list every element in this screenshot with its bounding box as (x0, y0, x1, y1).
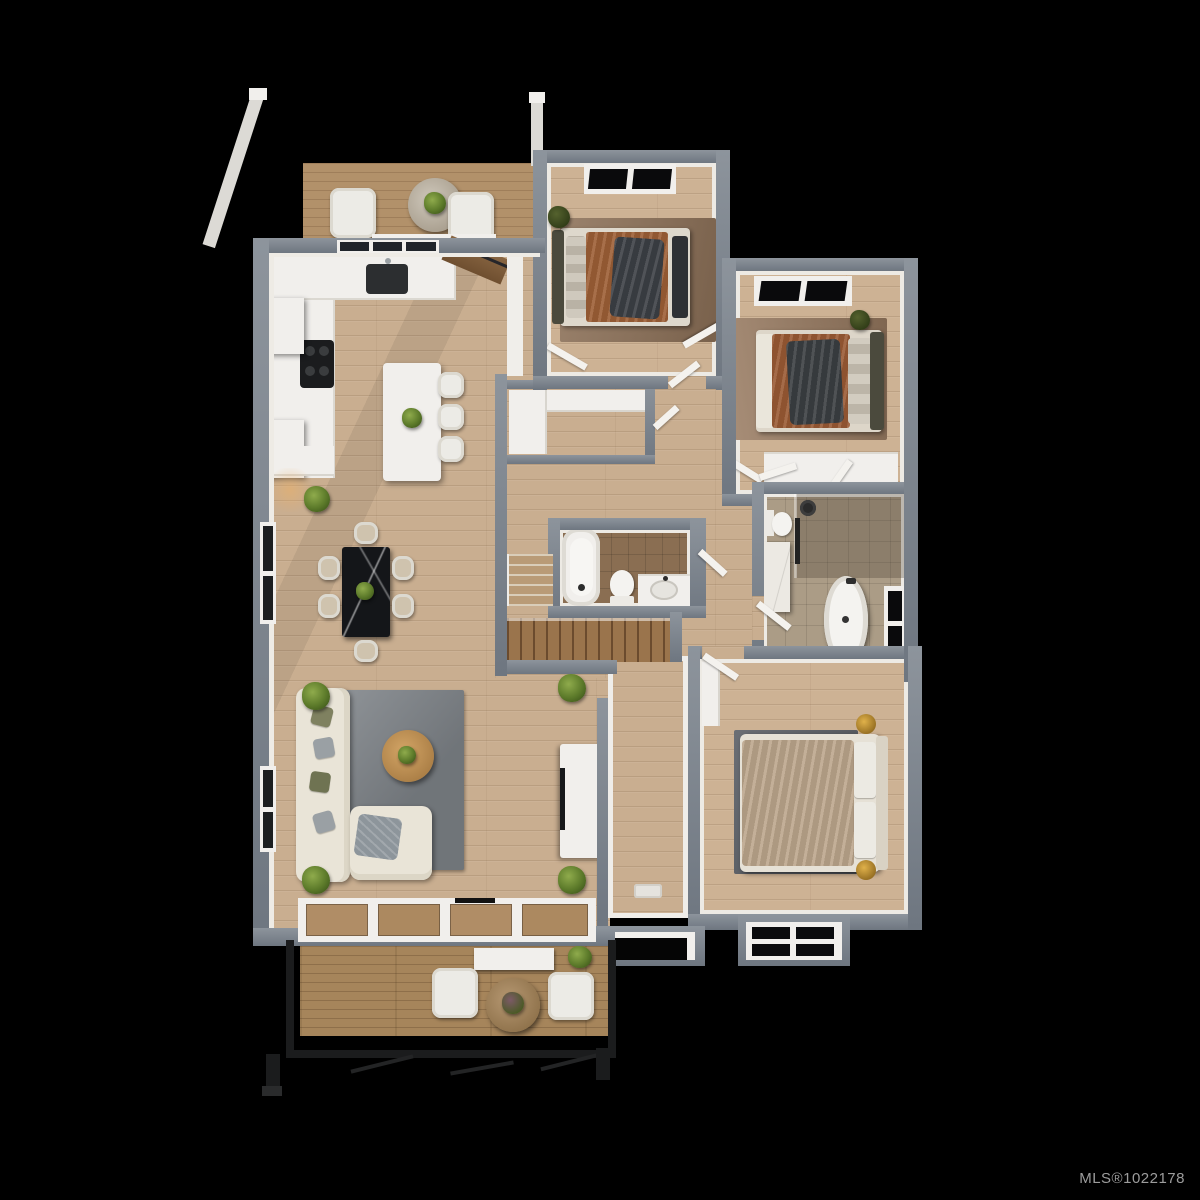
island-stool (438, 372, 464, 398)
pantry-wall-face (507, 250, 523, 376)
stair-bottom-wall (495, 660, 617, 674)
outer-wall-right-upper (904, 258, 918, 682)
bedroom3-pillow (854, 802, 876, 858)
bedroom3-window-glass (752, 927, 790, 939)
main-bath-toilet-bowl (610, 570, 634, 598)
deck-frame-brace (450, 1060, 514, 1075)
dining-chair (318, 594, 340, 618)
kitchen-faucet (385, 258, 391, 264)
balcony-beam-left (203, 92, 265, 248)
bedroom1-plant (548, 206, 570, 228)
bedroom1-wall-top (533, 150, 730, 163)
bedroom2-wall-top (722, 258, 918, 271)
bedroom1-pillows (566, 236, 586, 318)
walkin-closet-wall-bottom (503, 455, 655, 464)
ensuite-tub-faucet (846, 578, 856, 584)
main-bath-tub-drain (578, 584, 585, 591)
hall-wall-left (495, 374, 507, 676)
deck-leg-right (596, 1048, 610, 1080)
kitchen-sink (366, 264, 408, 294)
deck-console (474, 948, 554, 970)
kitchen-window-glass (406, 242, 436, 251)
deck-door-pane (306, 904, 368, 936)
bedroom3-pillow (854, 742, 876, 798)
outer-wall-right-lower (908, 646, 922, 930)
main-bath-wall-right (690, 518, 706, 618)
mls-watermark: MLS®1022178 (1040, 1170, 1185, 1187)
entry-door-opening (611, 938, 687, 960)
main-staircase-down (507, 618, 671, 662)
main-bath-sink (650, 580, 678, 600)
bedroom3-window-glass (796, 944, 834, 956)
dining-side-window-glass (263, 576, 273, 620)
bedroom2-dark-throw (786, 339, 844, 426)
bedroom1-window-glass (632, 169, 672, 189)
deck-door-pane (522, 904, 588, 936)
dining-side-window-glass (263, 526, 273, 571)
ensuite-rain-shower-head (800, 500, 816, 516)
ensuite-tub-drain (842, 616, 849, 623)
living-corner-plant (302, 866, 330, 894)
bedroom1-dark-throw (609, 236, 664, 319)
living-corner-plant (302, 682, 330, 710)
coffee-table-plant (398, 746, 416, 764)
dining-chair (354, 640, 378, 662)
dining-chair (392, 594, 414, 618)
entry-corridor-wall-left (597, 698, 608, 930)
cooktop-burner (319, 366, 329, 376)
deck-chair-left (432, 968, 478, 1018)
living-side-window-glass (263, 770, 273, 807)
bedroom3-gold-nightstand (856, 860, 876, 880)
dining-table-plant (356, 582, 374, 600)
main-bath-wall-top (548, 518, 706, 530)
island-stool (438, 404, 464, 430)
deck-railing-right (608, 940, 616, 1058)
bedroom1-headboard (552, 230, 564, 324)
bedroom3-closet (702, 662, 720, 726)
walkin-closet-wall-right (645, 380, 655, 464)
sofa-pillow (312, 736, 335, 759)
dining-chair (318, 556, 340, 580)
bedroom3-duvet (742, 740, 854, 866)
entry-corridor-floor (608, 656, 688, 918)
bedroom3-headboard (876, 736, 888, 870)
ensuite-wall-top (752, 482, 918, 494)
dining-chair (354, 522, 378, 544)
kitchen-counter-top-run (268, 253, 456, 300)
dining-corner-plant (304, 486, 330, 512)
sofa-throw-blanket (353, 813, 402, 861)
bedroom1-window-glass (588, 169, 628, 189)
walkin-wardrobe-left (509, 390, 547, 454)
island-stool (438, 436, 464, 462)
ensuite-toilet-bowl (772, 512, 792, 536)
deck-railing-left (286, 940, 294, 1058)
kitchen-window-glass (340, 242, 369, 251)
living-side-window-glass (263, 812, 273, 848)
island-plant (402, 408, 422, 428)
deck-door-pane (378, 904, 440, 936)
bedroom2-pillows (848, 338, 872, 424)
bedroom3-window-glass (796, 927, 834, 939)
bedroom1-foot-bench (672, 236, 688, 318)
ensuite-window-glass (888, 591, 902, 621)
bedroom2-headboard (870, 332, 884, 430)
floor-plan-render: MLS®1022178 (0, 0, 1200, 1200)
tv-screen (560, 768, 565, 830)
bedroom2-plant (850, 310, 870, 330)
deck-leg-left (266, 1054, 280, 1090)
bedroom3-window-glass (752, 944, 790, 956)
main-bath-toilet-tank (610, 596, 634, 605)
deck-chair-right (548, 972, 594, 1020)
main-bath-faucet (663, 576, 668, 581)
ensuite-shower-bar (795, 518, 800, 564)
bedroom2-wall-left (722, 258, 736, 506)
living-corner-plant (558, 674, 586, 702)
balcony-beam-left-cap (249, 88, 267, 100)
deck-door-pane (450, 904, 512, 936)
stair-side-wall (670, 612, 682, 662)
deck-leg-left-foot (262, 1086, 282, 1096)
cooktop-burner (319, 346, 329, 356)
cooktop-burner (305, 366, 315, 376)
bedroom3-gold-nightstand (856, 714, 876, 734)
kitchen-window-glass (373, 242, 402, 251)
inner-wall-face-top (269, 253, 540, 257)
balcony-table-plant (424, 192, 446, 214)
upper-stair-flight (507, 554, 553, 606)
media-console (560, 744, 602, 858)
living-corner-plant (558, 866, 586, 894)
main-bath-wall-bottom (548, 606, 706, 618)
ensuite-marble-column (764, 542, 790, 612)
bedroom3-wall-left (688, 646, 700, 930)
deck-plant (568, 946, 592, 968)
cooktop-burner (305, 346, 315, 356)
balcony-chair-left (330, 188, 376, 238)
bedroom2-window-glass (759, 281, 802, 301)
bedroom2-window-glass (805, 281, 848, 301)
dining-chair (392, 556, 414, 580)
deck-door-open-gap (455, 898, 495, 903)
balcony-beam-right-cap (529, 92, 545, 103)
bedroom1-wall-left (533, 150, 547, 390)
deck-railing-bottom (286, 1050, 616, 1058)
deck-table-plant (502, 992, 524, 1014)
entry-door-mat (634, 884, 662, 898)
sofa-pillow (309, 771, 332, 794)
